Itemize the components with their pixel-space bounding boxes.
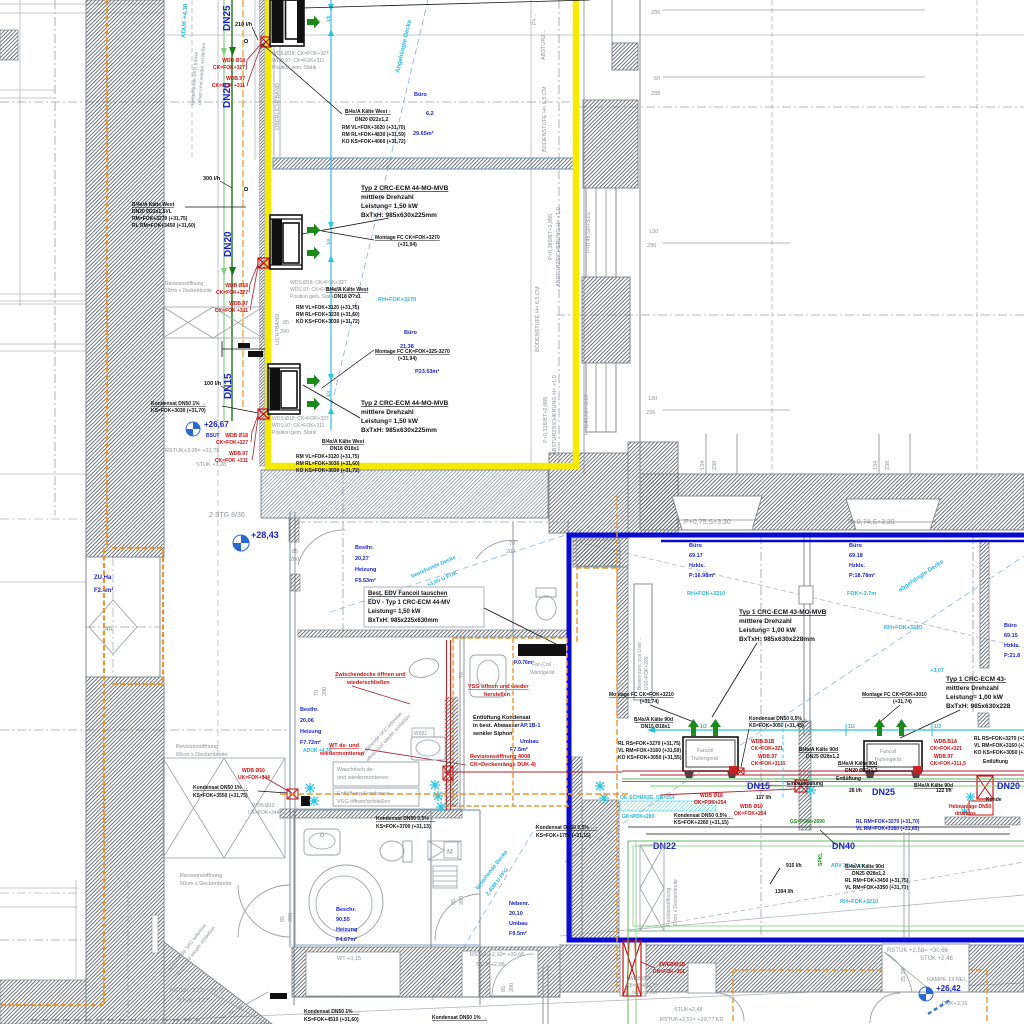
svg-text:Leistung= 1,00 kW: Leistung= 1,00 kW: [946, 694, 1004, 701]
svg-text:WDB.97: WDB.97: [758, 754, 777, 760]
svg-text:BxTxH: 985x630x228mm: BxTxH: 985x630x228mm: [739, 636, 815, 643]
svg-text:GK=FOK+280: GK=FOK+280: [622, 814, 654, 820]
svg-text:Revisionsöffnung 4008: Revisionsöffnung 4008: [470, 754, 530, 760]
svg-text:20,27: 20,27: [355, 556, 369, 562]
svg-text:P+0,74,S+3,30: P+0,74,S+3,30: [848, 519, 895, 526]
svg-text:DN20: DN20: [223, 231, 234, 257]
svg-text:DN15: DN15: [747, 781, 770, 791]
svg-text:P+0,41,SH+2,69: P+0,41,SH+2,69: [584, 394, 590, 435]
svg-text:28 l/h: 28 l/h: [849, 788, 862, 794]
svg-text:drucklos: drucklos: [955, 811, 976, 817]
svg-text:W002: W002: [414, 731, 427, 737]
svg-text:4A: 4A: [105, 627, 112, 633]
svg-text:Waschtisch de-: Waschtisch de-: [337, 767, 375, 773]
svg-text:DN25: DN25: [872, 787, 895, 797]
svg-text:Fancoil: Fancoil: [697, 748, 713, 754]
svg-text:B/4x/A Kälte West: B/4x/A Kälte West: [326, 287, 369, 293]
svg-text:RM VL=FOK+3120 (+31,75): RM VL=FOK+3120 (+31,75): [296, 305, 360, 311]
svg-text:senkler Siphon: senkler Siphon: [473, 731, 513, 737]
svg-text:KO KS=FOK+3030 (+31,72): KO KS=FOK+3030 (+31,72): [296, 468, 360, 474]
svg-text:85: 85: [280, 916, 286, 922]
svg-text:Fancoil: Fancoil: [880, 749, 896, 755]
svg-text:RAMPE 13 NEI..: RAMPE 13 NEI..: [927, 977, 968, 983]
svg-text:1394 l/h: 1394 l/h: [775, 889, 793, 895]
svg-text:DN=FOK+351: DN=FOK+351: [653, 969, 685, 975]
svg-text:mittlere Drehzahl: mittlere Drehzahl: [361, 409, 414, 416]
svg-text:FOK=-3.7m: FOK=-3.7m: [847, 591, 876, 597]
svg-text:BxTxH: 985x225x630mm: BxTxH: 985x225x630mm: [368, 618, 438, 624]
svg-text:KO KS=FOK+3030 (+31,72): KO KS=FOK+3030 (+31,72): [296, 319, 360, 325]
svg-text:ZWEB/B1B: ZWEB/B1B: [659, 962, 686, 968]
svg-text:Entlüftung Kondensat: Entlüftung Kondensat: [473, 715, 531, 721]
svg-text:Büro: Büro: [689, 543, 702, 549]
svg-text:60cm x Deckenbreite: 60cm x Deckenbreite: [180, 881, 232, 887]
svg-text:Büro: Büro: [404, 330, 417, 336]
svg-text:DN15 Ø18x1: DN15 Ø18x1: [641, 724, 670, 730]
svg-text:BODENSTUFE H= 6,5 CM: BODENSTUFE H= 6,5 CM: [542, 86, 548, 152]
svg-text:VSG öffnen und wieder: VSG öffnen und wieder: [468, 684, 529, 690]
svg-text:WDS Ø18; CK=FOK+327: WDS Ø18; CK=FOK+327: [272, 51, 329, 57]
svg-text:mittlere Drehzahl: mittlere Drehzahl: [361, 194, 414, 201]
svg-text:BxTxH: 985x630x225mm: BxTxH: 985x630x225mm: [361, 212, 437, 219]
svg-text:WDB.97: WDB.97: [934, 754, 953, 760]
svg-text:236: 236: [651, 10, 660, 16]
svg-text:Büro: Büro: [849, 543, 862, 549]
svg-text:20,10: 20,10: [509, 911, 523, 917]
svg-text:Truhengerät: Truhengerät: [691, 756, 719, 762]
svg-text:BODENSTUFE H= 6,5 CM: BODENSTUFE H= 6,5 CM: [535, 286, 541, 352]
svg-text:STUK+2,48: STUK+2,48: [674, 1007, 703, 1013]
svg-text:Umbau: Umbau: [509, 921, 528, 927]
svg-text:(+31,74): (+31,74): [893, 699, 912, 705]
svg-text:KS=FOK+3050 (+31,43): KS=FOK+3050 (+31,43): [749, 723, 804, 729]
svg-text:B/4x/A Kälte 90d: B/4x/A Kälte 90d: [845, 864, 884, 870]
svg-text:Revisionsöffnung: Revisionsöffnung: [176, 744, 218, 750]
svg-text:Heizung: Heizung: [355, 567, 376, 573]
svg-text:B/4x/A Kälte 90d: B/4x/A Kälte 90d: [634, 717, 673, 723]
svg-text:P23.53m²: P23.53m²: [415, 368, 439, 375]
svg-text:BSUT: BSUT: [206, 433, 220, 439]
svg-text:RH+FOK+3210: RH+FOK+3210: [884, 625, 922, 631]
svg-text:Zwischendecke öffnen und: Zwischendecke öffnen und: [335, 672, 406, 678]
svg-text:238: 238: [651, 91, 660, 97]
svg-text:Beschr.: Beschr.: [336, 907, 356, 913]
svg-text:134: 134: [700, 461, 706, 470]
svg-text:RSTUK +2,58= +30,66: RSTUK +2,58= +30,66: [887, 948, 949, 954]
svg-text:KS=FOK+3700 (+31,13): KS=FOK+3700 (+31,13): [376, 824, 431, 830]
svg-text:Kondensat DN50 1% →: Kondensat DN50 1% →: [151, 401, 206, 407]
svg-text:Leistung= 1,00 kW: Leistung= 1,00 kW: [739, 627, 797, 634]
svg-text:OK-SCHÜRZE, DN=254: OK-SCHÜRZE, DN=254: [620, 794, 675, 801]
svg-text:B/4x/A Kälte 90d: B/4x/A Kälte 90d: [799, 747, 838, 753]
svg-text:OBERLICHTBAND: OBERLICHTBAND: [275, 83, 281, 130]
svg-text:P+0,316/BT+2,985: P+0,316/BT+2,985: [543, 397, 549, 443]
svg-text:WDB Ø10: WDB Ø10: [740, 804, 763, 810]
svg-text:RM VL=FOK+3020 (+31,70): RM VL=FOK+3020 (+31,70): [342, 125, 406, 131]
svg-text:134: 134: [873, 461, 879, 470]
svg-text:RH+FOK+3210: RH+FOK+3210: [687, 591, 725, 597]
svg-text:Fan-Coil: Fan-Coil: [532, 662, 551, 668]
svg-text:Kondensat DN50 1% →: Kondensat DN50 1% →: [193, 785, 248, 791]
svg-text:(+31,94): (+31,94): [398, 356, 417, 362]
svg-text:6,2: 6,2: [426, 111, 434, 117]
svg-text:DN40: DN40: [832, 841, 855, 851]
svg-text:P+...: P+...: [532, 13, 538, 25]
svg-text:STUK +3,28: STUK +3,28: [196, 462, 226, 468]
svg-text:90,55: 90,55: [336, 917, 350, 923]
svg-text:Leistung= 1,50 kW: Leistung= 1,50 kW: [361, 203, 419, 210]
svg-text:Truhengerät: Truhengerät: [874, 757, 902, 763]
svg-text:DN20 Ø22r1,2: DN20 Ø22r1,2: [845, 768, 878, 774]
svg-text:T9: T9: [459, 672, 465, 678]
svg-text:130: 130: [648, 396, 657, 402]
svg-text:RSTUK+3,32= +31,75: RSTUK+3,32= +31,75: [170, 988, 224, 994]
svg-text:238: 238: [885, 461, 891, 470]
svg-text:60cm x Deckenbreite: 60cm x Deckenbreite: [176, 752, 228, 758]
svg-text:DN18 Ø?x1: DN18 Ø?x1: [334, 294, 361, 300]
svg-text:70: 70: [509, 541, 515, 547]
svg-text:RH+FOK+3210: RH+FOK+3210: [840, 899, 878, 905]
svg-text:DN20 Ø22x1,2: DN20 Ø22x1,2: [355, 117, 389, 123]
svg-text:69.15: 69.15: [1004, 633, 1018, 639]
svg-text:CK=FOK+3115: CK=FOK+3115: [751, 761, 786, 767]
svg-text:2 STG 8/36: 2 STG 8/36: [209, 512, 245, 519]
svg-text:Typ 2 CRC-ECM 44-MO-MVB: Typ 2 CRC-ECM 44-MO-MVB: [361, 185, 449, 192]
svg-text:Kondensat DN50 1% →: Kondensat DN50 1% →: [304, 1009, 359, 1015]
svg-text:CK=FOK+327: CK=FOK+327: [216, 290, 248, 296]
svg-text:F7.72m²: F7.72m²: [300, 739, 321, 746]
svg-text:Besenraum, zus Liste ...: Besenraum, zus Liste ...: [637, 636, 643, 690]
svg-text:Best. EDV Fancoil tauschen: Best. EDV Fancoil tauschen: [368, 591, 448, 597]
svg-text:WDB Ø18: WDB Ø18: [700, 793, 723, 799]
svg-text:Besthr.: Besthr.: [355, 545, 374, 551]
svg-text:WDB.B1B: WDB.B1B: [751, 739, 775, 745]
svg-text:B/4x/A Kälte 90d: B/4x/A Kälte 90d: [914, 783, 953, 789]
svg-text:RH+FOK+3270: RH+FOK+3270: [378, 297, 416, 303]
svg-text:RM VL=FOK+3120 (+31,75): RM VL=FOK+3120 (+31,75): [296, 454, 360, 460]
svg-text:RM RL=FOK+4830 (+31,59): RM RL=FOK+4830 (+31,59): [342, 132, 406, 138]
svg-text:85: 85: [292, 549, 298, 555]
svg-text:Kondensat DN50 0,5% ←-: Kondensat DN50 0,5% ←-: [536, 825, 597, 831]
svg-text:50cm x Deckenbreite: 50cm x Deckenbreite: [165, 288, 212, 294]
svg-text:Büro: Büro: [414, 92, 427, 98]
svg-text:300 l/h: 300 l/h: [203, 176, 221, 182]
svg-text:915 l/h: 915 l/h: [786, 863, 802, 869]
svg-text:Umbau: Umbau: [520, 739, 539, 745]
svg-text:Entlüftung: Entlüftung: [836, 776, 861, 782]
svg-text:P:21.8: P:21.8: [1004, 653, 1020, 659]
svg-text:RM=FOK+3270 (+31,75): RM=FOK+3270 (+31,75): [132, 216, 188, 222]
svg-text:RL RM=FOK+3450 (+31,60): RL RM=FOK+3450 (+31,60): [132, 223, 196, 229]
svg-text:130: 130: [649, 229, 658, 235]
svg-text:Revisionsöffnung: Revisionsöffnung: [165, 281, 203, 287]
svg-text:ABSTURZ...: ABSTURZ...: [541, 29, 547, 60]
svg-text:70: 70: [314, 690, 320, 696]
svg-text:WDB Ø18: WDB Ø18: [225, 433, 248, 439]
svg-text:CK=FOK+327: CK=FOK+327: [216, 440, 248, 446]
svg-text:Kondensat DN50 0,5% ←: Kondensat DN50 0,5% ←: [674, 813, 733, 819]
svg-text:25 26: 25 26: [901, 968, 907, 982]
svg-text:60: 60: [654, 76, 660, 82]
svg-text:69.17: 69.17: [689, 553, 703, 559]
svg-text:Heizung: Heizung: [336, 927, 357, 933]
svg-text:WDB Ø10: WDB Ø10: [242, 768, 265, 774]
svg-text:P+0,385/BT+2,985: P+0,385/BT+2,985: [548, 214, 554, 260]
svg-text:VL RM=FOK+3350 (+31,70): VL RM=FOK+3350 (+31,70): [845, 885, 908, 891]
svg-text:CK=FOK+321: CK=FOK+321: [930, 746, 962, 752]
svg-text:DN22: DN22: [653, 841, 676, 851]
svg-text:P+0,46,SH+3,03: P+0,46,SH+3,03: [586, 212, 592, 253]
svg-text:200: 200: [459, 896, 465, 905]
svg-text:85: 85: [451, 899, 457, 905]
svg-text:KS=FOK+3030 (+31,70): KS=FOK+3030 (+31,70): [151, 408, 206, 414]
svg-text:GS=FOK+2690: GS=FOK+2690: [790, 819, 825, 825]
svg-text:Position gem. Statik: Position gem. Statik: [290, 294, 335, 300]
svg-text:EDV - Typ 1 CRC-ECM 44-MV: EDV - Typ 1 CRC-ECM 44-MV: [368, 600, 450, 606]
svg-text:DN20 Ø22x1,5VL: DN20 Ø22x1,5VL: [132, 209, 172, 215]
svg-text:CK=FOK+327: CK=FOK+327: [213, 65, 245, 71]
svg-text:(+31,94): (+31,94): [398, 242, 417, 248]
svg-text:...tion vor Ort: ...tion vor Ort: [628, 990, 658, 996]
svg-text:117 l/h: 117 l/h: [756, 795, 771, 801]
svg-text:WT de- und: WT de- und: [329, 743, 359, 749]
svg-text:KS=FOK+4510 (+31,60): KS=FOK+4510 (+31,60): [304, 1017, 359, 1023]
svg-text:RSTUK+2,10= +30,66: RSTUK+2,10= +30,66: [470, 952, 524, 958]
svg-text:1/2: 1/2: [700, 724, 707, 730]
svg-text:STUK +3,27: STUK +3,27: [178, 998, 208, 1004]
svg-text:KO KS=FOK+3050 (+3: KO KS=FOK+3050 (+3: [974, 750, 1024, 756]
svg-text:Revisionsöffnung: Revisionsöffnung: [666, 888, 672, 926]
svg-text:mittlere Drehzahl: mittlere Drehzahl: [946, 685, 999, 692]
svg-text:1/3: 1/3: [934, 724, 941, 730]
svg-text:KO KS=FOK+3050 (+31,55): KO KS=FOK+3050 (+31,55): [618, 755, 682, 761]
svg-text:und wiedermontieren: und wiedermontieren: [337, 775, 388, 781]
svg-text:Typ 1 CRC-ECM 43-: Typ 1 CRC-ECM 43-: [946, 676, 1006, 683]
svg-text:STUK+2,06: STUK+2,06: [476, 962, 505, 968]
svg-text:100 l/h: 100 l/h: [204, 381, 222, 387]
svg-text:WDB.97: WDB.97: [226, 76, 245, 82]
svg-text:+28,43: +28,43: [251, 530, 279, 540]
svg-text:200: 200: [509, 983, 515, 992]
svg-text:B/4x/A Kälte 90d: B/4x/A Kälte 90d: [838, 761, 877, 767]
svg-text:CK=Deckenränge DUK-4): CK=Deckenränge DUK-4): [470, 762, 536, 768]
svg-text:200: 200: [288, 913, 294, 922]
svg-text:+3,07: +3,07: [930, 668, 944, 674]
svg-text:Hzkls.: Hzkls.: [689, 563, 705, 569]
svg-text:(+31,74): (+31,74): [640, 699, 659, 705]
svg-text:AP.1B-1: AP.1B-1: [520, 723, 540, 729]
svg-text:WDS.97; CK=FOK+311: WDS.97; CK=FOK+311: [272, 58, 325, 64]
svg-text:Hebeanlage DN50: Hebeanlage DN50: [949, 804, 991, 810]
svg-text:+26,42: +26,42: [936, 984, 961, 993]
svg-text:wiederschließen: wiederschließen: [346, 680, 390, 686]
svg-text:200: 200: [506, 549, 515, 555]
svg-text:DN15: DN15: [223, 373, 234, 399]
svg-text:85: 85: [501, 986, 507, 992]
svg-text:KB=FOK+378: KB=FOK+378: [626, 983, 657, 989]
svg-text:Büro: Büro: [1004, 623, 1017, 629]
svg-text:RL RS=FOK+3270 (+31,75): RL RS=FOK+3270 (+31,75): [618, 741, 681, 747]
svg-text:VL RM=FOK+3160 (+31,59): VL RM=FOK+3160 (+31,59): [618, 748, 681, 754]
svg-text:P+0,75,S+3,30: P+0,75,S+3,30: [684, 519, 731, 526]
svg-text:M: M: [447, 849, 453, 856]
svg-text:20,06: 20,06: [300, 718, 314, 724]
svg-text:Montage FC CK=FOK+3210: Montage FC CK=FOK+3210: [609, 692, 674, 698]
svg-text:DN25 Ø28x1,2: DN25 Ø28x1,2: [806, 754, 840, 760]
svg-text:WDB.B1A: WDB.B1A: [934, 739, 958, 745]
svg-text:DN18 Ø18x1: DN18 Ø18x1: [330, 446, 359, 452]
svg-text:Leistung= 1,50 kW: Leistung= 1,50 kW: [368, 609, 421, 615]
svg-text:Kondensat DN50 1% →: Kondensat DN50 1% →: [432, 1015, 487, 1021]
svg-text:Entlüftung: Entlüftung: [983, 759, 1008, 765]
svg-text:F9.5m²: F9.5m²: [509, 930, 527, 937]
svg-text:200: 200: [322, 687, 328, 696]
svg-text:Kondensat DN50 0,5% ←: Kondensat DN50 0,5% ←: [376, 816, 435, 822]
svg-text:RL RS=FOK+3270 (+31,7: RL RS=FOK+3270 (+31,7: [974, 736, 1024, 742]
svg-text:+26,67: +26,67: [204, 420, 229, 429]
svg-text:SPKL: SPKL: [818, 853, 824, 866]
svg-text:Position gem. Statik: Position gem. Statik: [272, 65, 317, 71]
svg-text:200: 200: [280, 329, 289, 335]
svg-text:KS=FOK+2260 (+31,15): KS=FOK+2260 (+31,15): [674, 820, 729, 826]
svg-text:STUK +2,46: STUK +2,46: [920, 956, 954, 962]
svg-text:1/4: 1/4: [326, 390, 331, 397]
svg-text:Besthr.: Besthr.: [300, 707, 319, 713]
svg-text:WDB.97: WDB.97: [229, 451, 248, 457]
svg-text:P:16.98m²: P:16.98m²: [689, 572, 715, 579]
svg-text:RL RM=FOK+3450 (+31,75): RL RM=FOK+3450 (+31,75): [845, 878, 909, 884]
svg-text:Hzkls.: Hzkls.: [1004, 643, 1020, 649]
svg-text:Position gem. Statik: Position gem. Statik: [272, 430, 317, 436]
svg-text:ABSTURZSICHERUNG H= +1,0: ABSTURZSICHERUNG H= +1,0: [556, 207, 562, 287]
svg-text:Hzkls.: Hzkls.: [849, 563, 865, 569]
svg-text:238: 238: [712, 461, 718, 470]
svg-text:BxTxH: 985x630x228: BxTxH: 985x630x228: [946, 703, 1011, 710]
svg-text:F5.53m²: F5.53m²: [355, 577, 376, 584]
svg-text:210 l/h: 210 l/h: [235, 22, 253, 28]
svg-text:UK=FOK+344: UK=FOK+344: [248, 810, 280, 816]
svg-text:Montage FC CK=FOK+3270: Montage FC CK=FOK+3270: [375, 235, 440, 241]
svg-text:RSTUK+2,51= +29,?? KD: RSTUK+2,51= +29,?? KD: [660, 1017, 723, 1023]
svg-text:Montage FC CK=FOK+3010: Montage FC CK=FOK+3010: [862, 692, 927, 698]
svg-text:60cm x Deckenbreite: 60cm x Deckenbreite: [673, 879, 679, 926]
svg-text:Konde: Konde: [986, 797, 1002, 803]
svg-text:Nebenr.: Nebenr.: [509, 901, 530, 907]
svg-text:236: 236: [646, 410, 655, 416]
svg-text:OK=FOK+254: OK=FOK+254: [734, 811, 766, 817]
svg-text:RM RL=FOK+3230 (+31,60): RM RL=FOK+3230 (+31,60): [296, 312, 360, 318]
svg-text:WDB Ø18: WDB Ø18: [222, 58, 245, 64]
svg-text:85: 85: [283, 320, 289, 326]
svg-text:WDS Ø18; CK=FOK+327: WDS Ø18; CK=FOK+327: [272, 416, 329, 422]
svg-text:VSG öffnen/schließen: VSG öffnen/schließen: [337, 799, 390, 805]
svg-text:U16=FOK+289: U16=FOK+289: [644, 656, 650, 690]
svg-text:CK=FOK +311: CK=FOK +311: [212, 83, 245, 89]
svg-text:BxTxH: 985x630x225mm: BxTxH: 985x630x225mm: [361, 427, 437, 434]
svg-text:RM RL=FOK+3030 (+31,60): RM RL=FOK+3030 (+31,60): [296, 461, 360, 467]
svg-text:KS=FOK+3550 (+31,75): KS=FOK+3550 (+31,75): [193, 793, 248, 799]
svg-text:VL RM=FOK+3160 (+31,65): VL RM=FOK+3160 (+31,65): [856, 826, 919, 832]
svg-text:OK=FOK+254: OK=FOK+254: [694, 800, 726, 806]
svg-text:wiedermontieren: wiedermontieren: [319, 751, 365, 757]
svg-text:Revisionsöffnung: Revisionsöffnung: [180, 873, 222, 879]
svg-text:WDB Ø??: WDB Ø??: [629, 976, 652, 982]
svg-text:KS=FOK+1750 (+31,15): KS=FOK+1750 (+31,15): [536, 833, 591, 839]
svg-text:69.18: 69.18: [849, 553, 863, 559]
svg-text:Montage FC CK=FOK+325-3270: Montage FC CK=FOK+325-3270: [375, 349, 450, 355]
svg-text:1/2: 1/2: [326, 15, 331, 22]
svg-text:Heizung: Heizung: [300, 729, 321, 735]
svg-text:Typ 2 CRC-ECM 44-MO-MVB: Typ 2 CRC-ECM 44-MO-MVB: [361, 400, 449, 407]
svg-text:WDB.97: WDB.97: [229, 301, 248, 307]
svg-text:1/4: 1/4: [326, 238, 331, 245]
svg-text:1/2: 1/2: [848, 724, 855, 730]
svg-text:CK=FOK+321: CK=FOK+321: [751, 746, 783, 752]
svg-text:236: 236: [647, 243, 656, 249]
svg-text:P:18.78m²: P:18.78m²: [849, 572, 875, 579]
svg-text:F4.6?m²: F4.6?m²: [336, 936, 357, 943]
svg-text:Kondensat DN50 0,5% ←: Kondensat DN50 0,5% ←: [749, 716, 808, 722]
svg-text:WDB Ø18: WDB Ø18: [225, 283, 248, 289]
svg-text:DN25 Ø28x1,2: DN25 Ø28x1,2: [852, 871, 886, 877]
svg-text:B/4x/A Kälte West: B/4x/A Kälte West: [132, 202, 175, 208]
svg-text:ABSTURZSICHERUNG H= +1,0: ABSTURZSICHERUNG H= +1,0: [552, 375, 558, 455]
svg-text:mittlere Drehzahl: mittlere Drehzahl: [739, 618, 792, 625]
svg-text:29.65m²: 29.65m²: [413, 130, 434, 137]
svg-text:DN20: DN20: [997, 781, 1020, 791]
svg-text:WDB Ø10: WDB Ø10: [252, 803, 275, 809]
svg-text:DN25: DN25: [222, 5, 233, 31]
svg-text:WDS.97; CK=FOK+311: WDS.97; CK=FOK+311: [272, 423, 325, 429]
svg-text:CK=FOK+311,5: CK=FOK+311,5: [930, 761, 966, 767]
svg-text:RSTUK+3,35= +31,?5: RSTUK+3,35= +31,?5: [165, 448, 219, 454]
svg-text:Leistung= 1,50 kW: Leistung= 1,50 kW: [361, 418, 419, 425]
svg-text:B/4x/A Kälte West ↑: B/4x/A Kälte West ↑: [345, 109, 391, 115]
svg-text:KO KS=FOK+4060 (+31,72): KO KS=FOK+4060 (+31,72): [342, 139, 406, 145]
svg-text:Wandgerät: Wandgerät: [530, 670, 555, 676]
svg-text:WT +3,15: WT +3,15: [337, 956, 361, 962]
svg-text:Einbauspülung: Einbauspülung: [787, 781, 823, 787]
svg-text:RL RM=FOK+3270 (+31,70): RL RM=FOK+3270 (+31,70): [856, 819, 920, 825]
svg-text:VL RM=FOK+3160 (+31,: VL RM=FOK+3160 (+31,: [974, 743, 1024, 749]
svg-text:Typ 1 CRC-ECM 43-MO-MVB: Typ 1 CRC-ECM 43-MO-MVB: [739, 609, 827, 616]
svg-text:B/4x/A Kälte West: B/4x/A Kälte West: [322, 439, 365, 445]
svg-text:WDS Ø18; CK=FOK+327: WDS Ø18; CK=FOK+327: [290, 280, 347, 286]
svg-text:200: 200: [290, 557, 299, 563]
